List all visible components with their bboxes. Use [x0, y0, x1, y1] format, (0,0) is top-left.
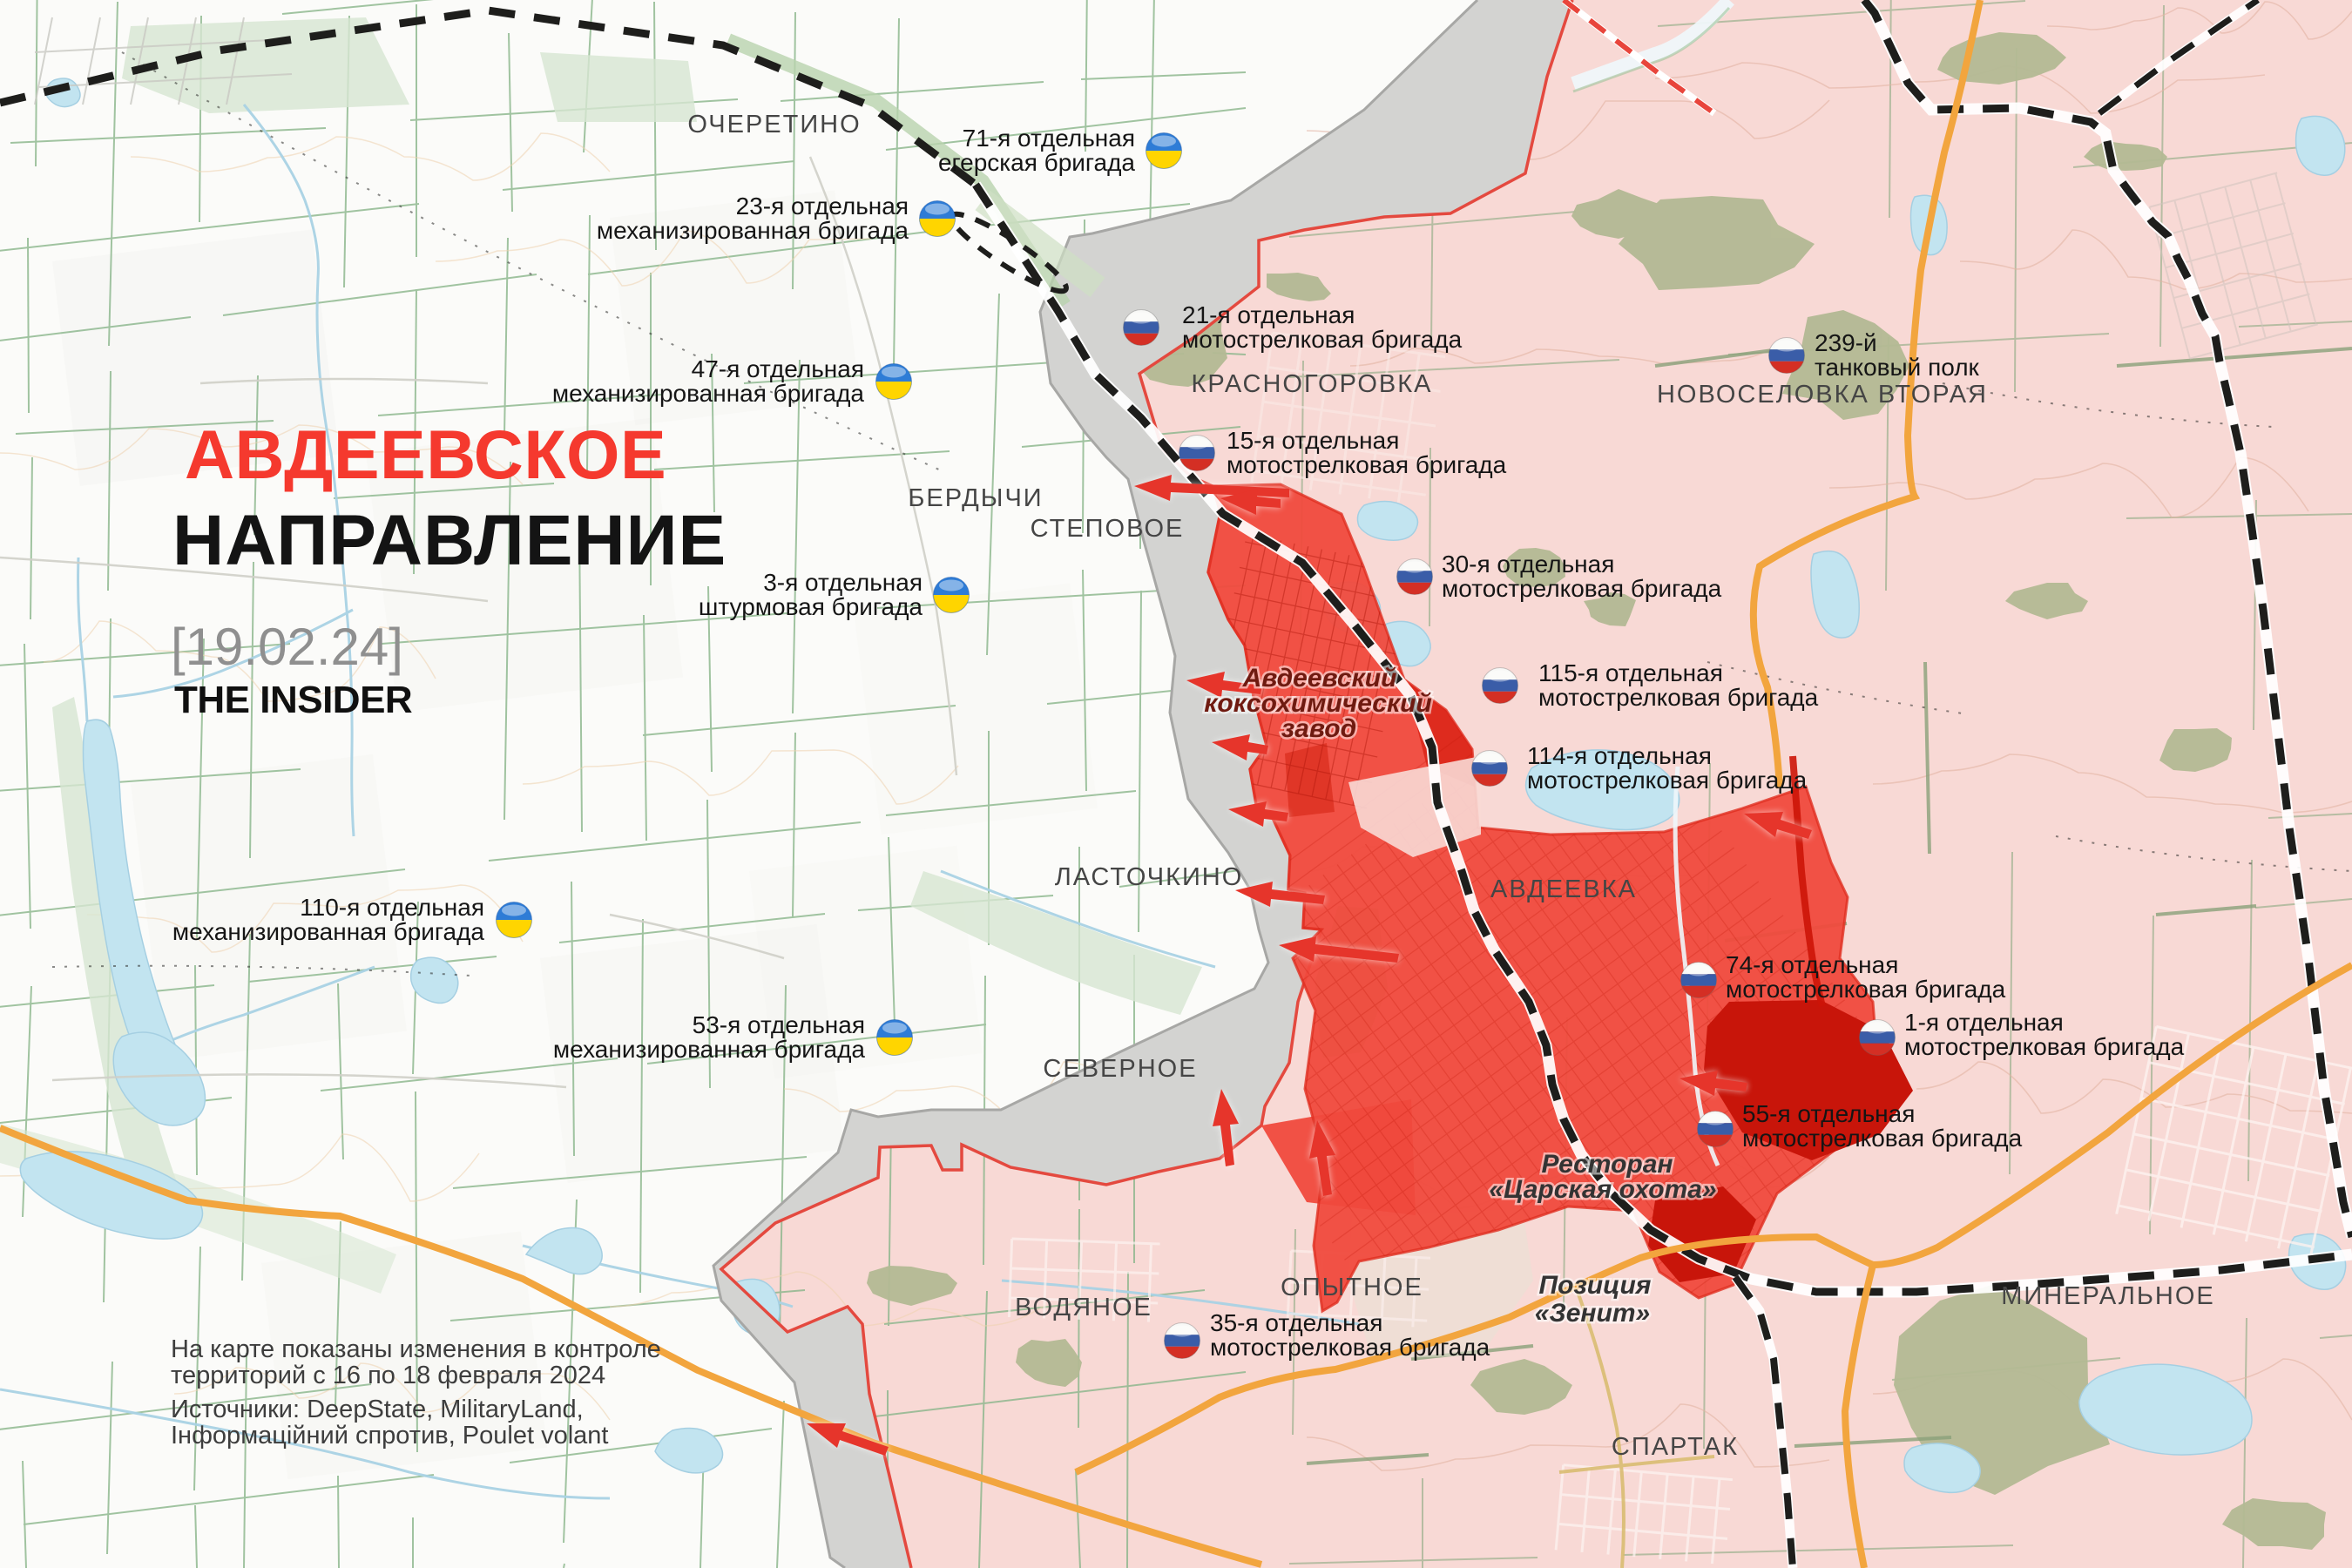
- svg-text:мотострелковая бригада: мотострелковая бригада: [1210, 1334, 1490, 1361]
- svg-text:На карте показаны изменения в: На карте показаны изменения в контроле: [171, 1335, 661, 1363]
- svg-text:танковый полк: танковый полк: [1815, 354, 1980, 381]
- svg-text:3-я отдельная: 3-я отдельная: [763, 569, 923, 596]
- svg-text:территорий с 16 по 18 февраля: территорий с 16 по 18 февраля 2024: [171, 1362, 605, 1389]
- svg-text:ЛАСТОЧКИНО: ЛАСТОЧКИНО: [1055, 863, 1244, 891]
- svg-text:механизированная бригада: механизированная бригада: [597, 217, 909, 244]
- svg-text:115-я отдельная: 115-я отдельная: [1538, 659, 1723, 686]
- svg-text:мотострелковая бригада: мотострелковая бригада: [1527, 767, 1808, 794]
- svg-text:23-я отдельная: 23-я отдельная: [736, 193, 909, 220]
- svg-text:СТЕПОВОЕ: СТЕПОВОЕ: [1031, 515, 1185, 543]
- svg-text:СПАРТАК: СПАРТАК: [1612, 1433, 1739, 1461]
- svg-text:мотострелковая бригада: мотострелковая бригада: [1742, 1125, 2023, 1152]
- svg-text:АВДЕЕВСКОЕ: АВДЕЕВСКОЕ: [185, 416, 666, 493]
- svg-text:35-я отдельная: 35-я отдельная: [1210, 1309, 1382, 1336]
- svg-text:механизированная бригада: механизированная бригада: [553, 1036, 866, 1063]
- svg-text:мотострелковая бригада: мотострелковая бригада: [1726, 976, 2006, 1003]
- svg-text:30-я отдельная: 30-я отдельная: [1442, 551, 1614, 578]
- svg-text:THE INSIDER: THE INSIDER: [174, 679, 412, 721]
- svg-text:21-я отдельная: 21-я отдельная: [1182, 301, 1355, 328]
- svg-text:71-я отдельная: 71-я отдельная: [963, 125, 1135, 152]
- svg-text:НОВОСЕЛОВКА ВТОРАЯ: НОВОСЕЛОВКА ВТОРАЯ: [1657, 381, 1988, 409]
- svg-text:мотострелковая бригада: мотострелковая бригада: [1182, 326, 1463, 353]
- svg-text:МИНЕРАЛЬНОЕ: МИНЕРАЛЬНОЕ: [2001, 1282, 2215, 1310]
- svg-text:47-я отдельная: 47-я отдельная: [692, 355, 864, 382]
- svg-text:55-я отдельная: 55-я отдельная: [1742, 1100, 1915, 1127]
- svg-text:КРАСНОГОРОВКА: КРАСНОГОРОВКА: [1192, 370, 1433, 398]
- svg-text:ОЧЕРЕТИНО: ОЧЕРЕТИНО: [687, 111, 861, 139]
- svg-text:НАПРАВЛЕНИЕ: НАПРАВЛЕНИЕ: [172, 501, 727, 580]
- svg-text:АВДЕЕВКА: АВДЕЕВКА: [1490, 875, 1637, 903]
- svg-text:мотострелковая бригада: мотострелковая бригада: [1227, 451, 1507, 478]
- svg-text:штурмовая бригада: штурмовая бригада: [699, 593, 923, 620]
- svg-text:110-я отдельная: 110-я отдельная: [300, 894, 484, 921]
- svg-text:СЕВЕРНОЕ: СЕВЕРНОЕ: [1043, 1055, 1197, 1083]
- svg-text:завод: завод: [1281, 714, 1356, 743]
- svg-text:мотострелковая бригада: мотострелковая бригада: [1904, 1033, 2185, 1060]
- svg-text:114-я отдельная: 114-я отдельная: [1527, 742, 1712, 769]
- svg-text:[19.02.24]: [19.02.24]: [171, 618, 403, 676]
- svg-text:мотострелковая бригада: мотострелковая бригада: [1538, 684, 1819, 711]
- svg-text:53-я отдельная: 53-я отдельная: [693, 1011, 865, 1038]
- svg-text:Позиция: Позиция: [1539, 1271, 1652, 1300]
- svg-text:15-я отдельная: 15-я отдельная: [1227, 427, 1399, 454]
- svg-text:Источники: DeepState, Military: Источники: DeepState, MilitaryLand,: [171, 1396, 584, 1423]
- svg-text:БЕРДЫЧИ: БЕРДЫЧИ: [908, 484, 1043, 512]
- svg-text:74-я отдельная: 74-я отдельная: [1726, 951, 1898, 978]
- svg-text:механизированная бригада: механизированная бригада: [172, 918, 485, 945]
- svg-text:1-я отдельная: 1-я отдельная: [1904, 1009, 2064, 1036]
- svg-text:егерская бригада: егерская бригада: [938, 149, 1135, 176]
- svg-text:239-й: 239-й: [1815, 329, 1877, 356]
- svg-text:«Царская охота»: «Царская охота»: [1489, 1175, 1716, 1204]
- svg-text:«Зенит»: «Зенит»: [1535, 1299, 1650, 1328]
- svg-text:мотострелковая бригада: мотострелковая бригада: [1442, 575, 1722, 602]
- svg-text:ВОДЯНОЕ: ВОДЯНОЕ: [1015, 1294, 1152, 1321]
- svg-text:Інформаційний спротив, Poulet: Інформаційний спротив, Poulet volant: [171, 1422, 608, 1450]
- svg-text:ОПЫТНОЕ: ОПЫТНОЕ: [1281, 1274, 1423, 1301]
- svg-text:механизированная бригада: механизированная бригада: [552, 380, 865, 407]
